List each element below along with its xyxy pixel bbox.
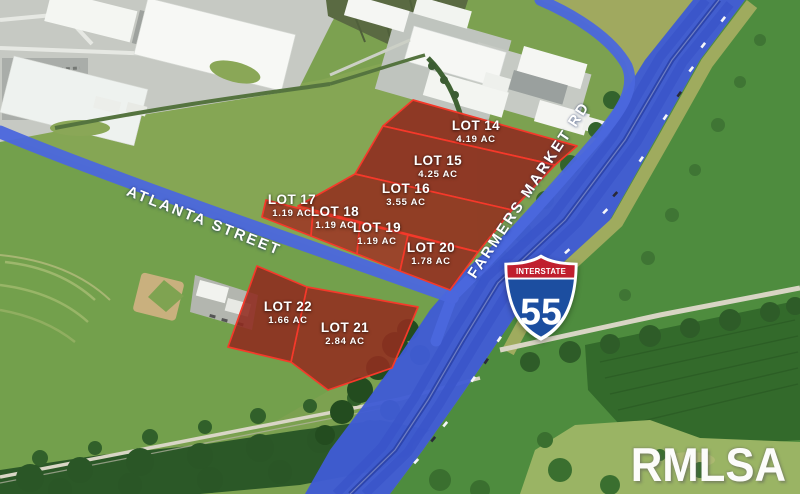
rmlsa-watermark: RMLSA	[631, 441, 786, 488]
interstate-55-shield: INTERSTATE 55	[502, 253, 580, 342]
interstate-shield-icon: INTERSTATE 55	[502, 253, 580, 342]
shield-header-text: INTERSTATE	[516, 267, 566, 276]
aerial-photo	[0, 0, 800, 494]
aerial-lot-map: LOT 14 4.19 AC LOT 15 4.25 AC LOT 16 3.5…	[0, 0, 800, 494]
shield-number-text: 55	[520, 291, 562, 333]
